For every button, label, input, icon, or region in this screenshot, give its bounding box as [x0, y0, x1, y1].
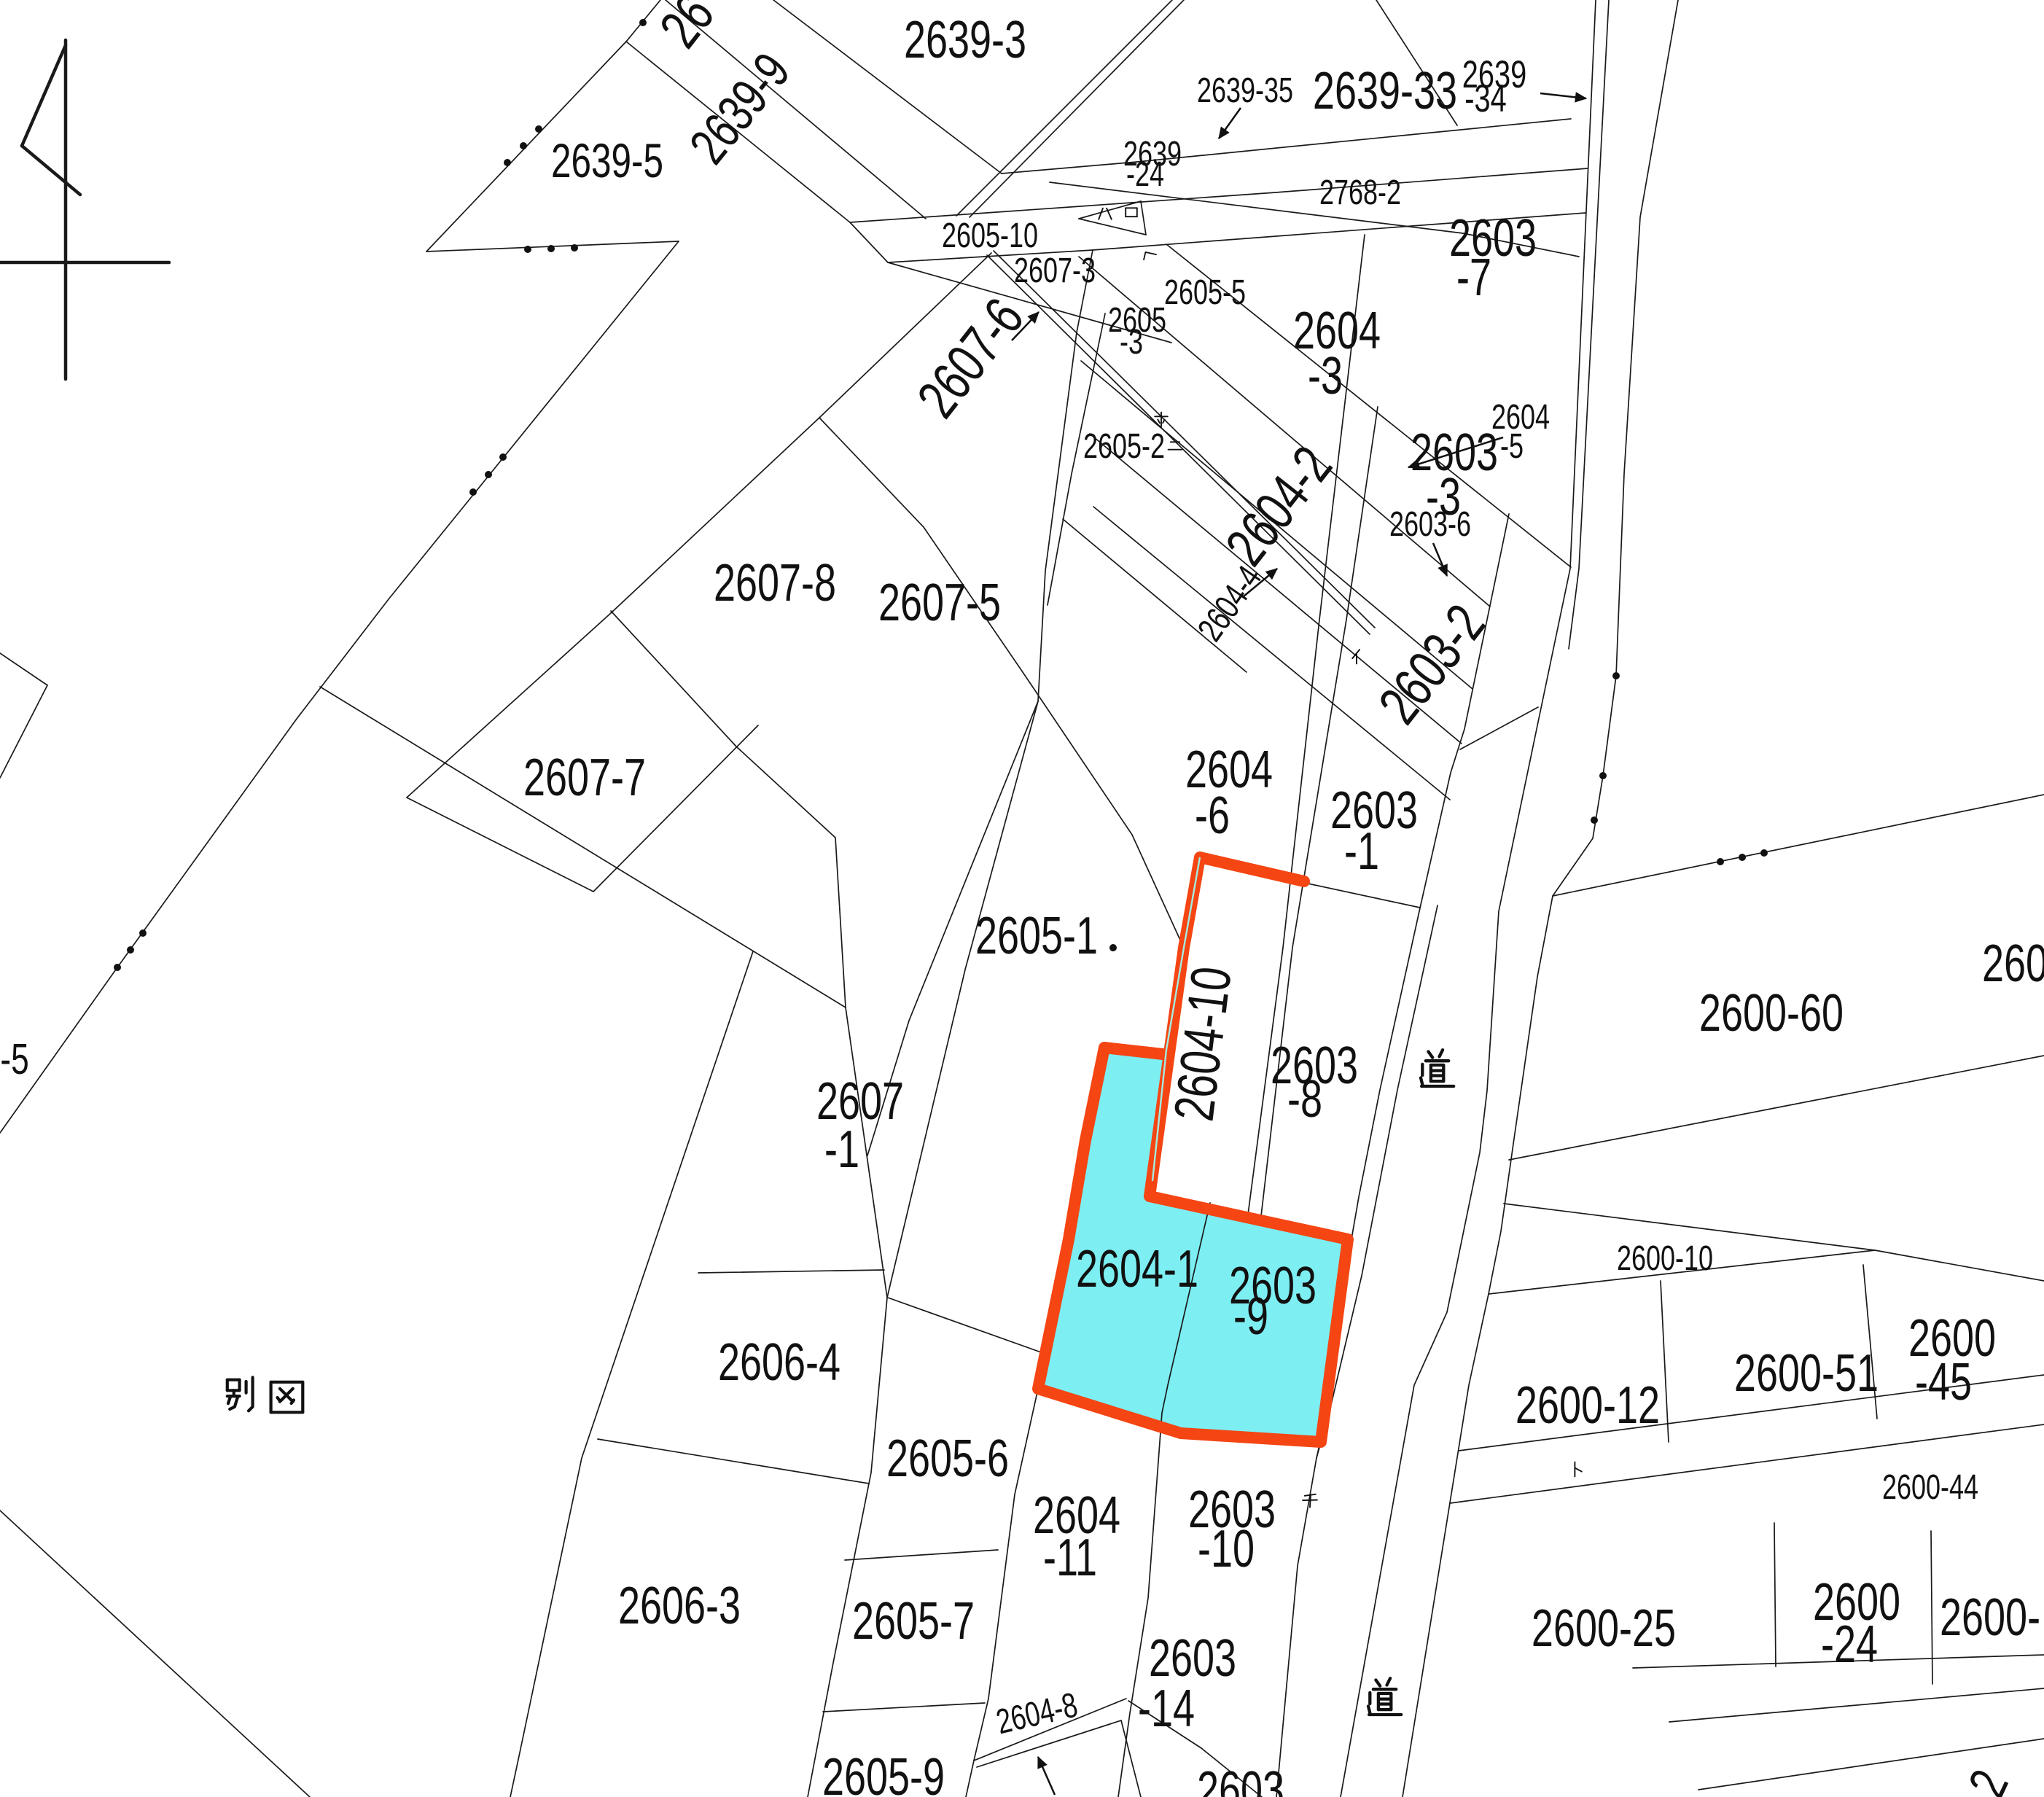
svg-text:-1: -1: [1344, 822, 1379, 881]
svg-text:2600-12: 2600-12: [1516, 1376, 1660, 1435]
svg-text:2600-51: 2600-51: [1734, 1344, 1879, 1403]
svg-text:2600-25: 2600-25: [1532, 1599, 1676, 1658]
svg-text:-5: -5: [1500, 426, 1524, 465]
svg-text:-3: -3: [1120, 322, 1143, 361]
svg-text:2607-5: 2607-5: [878, 574, 1001, 632]
svg-text:2606-4: 2606-4: [718, 1333, 840, 1392]
svg-text:2606-3: 2606-3: [618, 1577, 741, 1635]
svg-text:2605-10: 2605-10: [942, 216, 1038, 254]
svg-text:2639-3: 2639-3: [904, 11, 1026, 69]
svg-text:-3: -3: [1308, 347, 1343, 405]
svg-text:-1: -1: [824, 1120, 859, 1179]
svg-text:2607-8: 2607-8: [714, 554, 836, 612]
svg-text:-34: -34: [1464, 77, 1506, 120]
svg-text:-9: -9: [1233, 1287, 1268, 1346]
svg-text:2600-44: 2600-44: [1882, 1467, 1978, 1506]
svg-text:2607-7: 2607-7: [523, 749, 646, 807]
svg-text:-24: -24: [1821, 1615, 1878, 1674]
svg-text:-11: -11: [1043, 1529, 1097, 1587]
svg-text:2639-35: 2639-35: [1197, 71, 1293, 109]
svg-text:2600-: 2600-: [1940, 1589, 2040, 1647]
svg-text:2639-5: 2639-5: [551, 134, 663, 188]
svg-text:2600-: 2600-: [1982, 935, 2044, 993]
svg-text:2604-1: 2604-1: [1076, 1240, 1198, 1298]
svg-text:2605-7: 2605-7: [852, 1592, 975, 1650]
svg-text:2605-1: 2605-1: [975, 907, 1098, 965]
svg-text:2605-2: 2605-2: [1083, 426, 1165, 465]
svg-text:2639-33: 2639-33: [1313, 62, 1457, 120]
svg-text:-8: -8: [1287, 1070, 1322, 1129]
svg-text:2605-9: 2605-9: [822, 1748, 945, 1797]
svg-text:2603-6: 2603-6: [1389, 504, 1471, 543]
svg-text:2603: 2603: [1197, 1761, 1284, 1797]
svg-text:-7: -7: [1456, 249, 1491, 307]
svg-text:-10: -10: [1198, 1520, 1255, 1578]
svg-text:-24: -24: [1126, 155, 1164, 193]
svg-text:2605-6: 2605-6: [886, 1430, 1009, 1488]
svg-text:2607-3: 2607-3: [1014, 251, 1096, 289]
svg-text:2600-10: 2600-10: [1617, 1239, 1713, 1277]
svg-text:-5: -5: [0, 1036, 28, 1084]
svg-text:-45: -45: [1915, 1353, 1972, 1411]
svg-text:-6: -6: [1195, 787, 1230, 845]
svg-text:2605-5: 2605-5: [1164, 273, 1246, 311]
svg-text:2600-60: 2600-60: [1699, 984, 1844, 1042]
svg-text:2768-2: 2768-2: [1319, 173, 1401, 211]
svg-text:-14: -14: [1138, 1680, 1195, 1738]
